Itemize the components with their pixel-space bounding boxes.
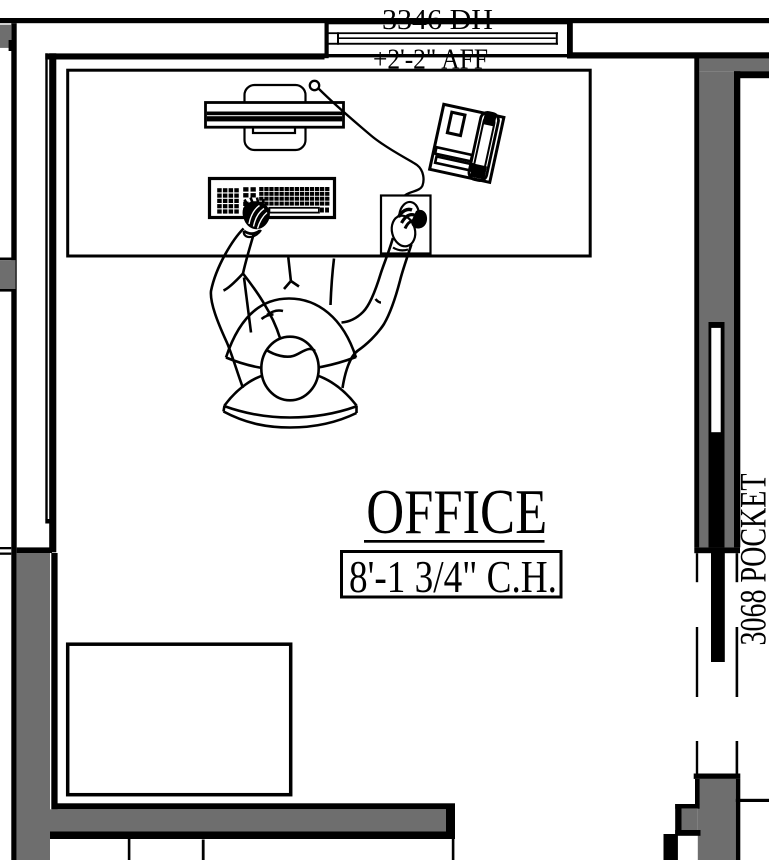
- svg-text:OFFICE: OFFICE: [366, 477, 547, 547]
- svg-text:3068 POCKET: 3068 POCKET: [733, 474, 769, 646]
- svg-text:8'-1 3/4" C.H.: 8'-1 3/4" C.H.: [349, 551, 557, 602]
- svg-text:3346 DH: 3346 DH: [382, 5, 493, 36]
